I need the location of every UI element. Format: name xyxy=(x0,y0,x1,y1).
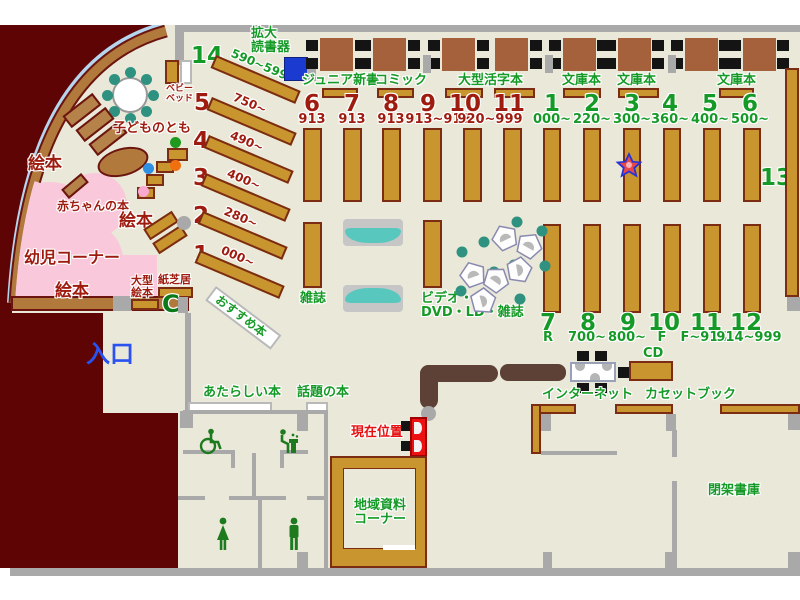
shelf-range: 220~ xyxy=(570,113,614,127)
chiiki-shelf-u: 地域資料 コーナー xyxy=(330,456,427,568)
oogata-ehon-shelf xyxy=(131,299,159,310)
chair xyxy=(477,58,489,69)
you-are-here-board xyxy=(410,417,427,457)
pillar xyxy=(668,55,676,73)
wall xyxy=(231,450,235,468)
pillar xyxy=(297,552,308,568)
wall xyxy=(178,496,205,500)
shelf-range: 914~999 xyxy=(716,331,782,345)
bookshelf xyxy=(463,128,482,202)
bookshelf xyxy=(743,224,761,313)
chair xyxy=(530,58,542,69)
study-carrels xyxy=(450,213,562,317)
section-label: ジュニア新書 xyxy=(302,74,379,88)
internet-label: インターネット xyxy=(542,388,633,402)
reading-table xyxy=(743,38,776,71)
pillar xyxy=(666,414,676,431)
entrance-label: 入口 xyxy=(86,342,134,368)
wall xyxy=(252,453,256,500)
wall xyxy=(672,481,677,552)
stool xyxy=(125,67,136,78)
shelf-range: 920~999 xyxy=(448,113,532,127)
maroon-bottom-left-block xyxy=(0,413,178,568)
shelf-range: 360~ xyxy=(648,113,692,127)
zasshi-shelf xyxy=(303,222,322,288)
bookshelf xyxy=(583,224,601,313)
bookshelf xyxy=(423,128,442,202)
chair xyxy=(729,40,741,51)
chair xyxy=(604,58,616,69)
wall xyxy=(541,451,617,455)
chair xyxy=(408,58,420,69)
chair xyxy=(359,40,371,51)
pillar xyxy=(545,55,553,73)
pillar xyxy=(665,552,677,568)
chair xyxy=(549,40,561,51)
pillar xyxy=(541,414,551,431)
shelf-range: 913 xyxy=(332,113,372,127)
woman-icon xyxy=(214,517,232,551)
star-marker xyxy=(614,151,644,181)
section-label: 大型活字本 xyxy=(458,74,523,88)
shelf-range: F xyxy=(647,331,677,345)
bottom-wall xyxy=(10,568,800,576)
chair xyxy=(777,40,789,51)
cd-shelf xyxy=(629,361,673,381)
section-label: 文庫本 xyxy=(617,74,656,88)
wall-pillar xyxy=(113,296,132,311)
stool xyxy=(109,74,120,85)
room-shelf xyxy=(531,404,541,454)
chair xyxy=(729,58,741,69)
kodomonotomo-label: 子どものとも xyxy=(113,122,191,136)
stool-green xyxy=(170,137,181,148)
reading-table xyxy=(442,38,475,71)
chair xyxy=(671,40,683,51)
step-shelf xyxy=(167,148,188,161)
bookshelf xyxy=(382,128,401,202)
section-label: 文庫本 xyxy=(717,74,756,88)
wadai-label: 話題の本 xyxy=(297,386,349,400)
chair xyxy=(477,40,489,51)
room-shelf xyxy=(720,404,800,414)
reading-table xyxy=(563,38,596,71)
baby-bed-label: ベビー ベッド xyxy=(166,85,193,104)
chair xyxy=(428,40,440,51)
corridor-wall xyxy=(185,313,191,413)
chair xyxy=(306,58,318,69)
pillar xyxy=(423,55,431,73)
service-counter xyxy=(420,365,438,409)
cassette-label: カセットブック xyxy=(645,388,736,402)
ehon-left-label: 絵本 xyxy=(28,155,62,173)
stool xyxy=(102,90,113,101)
reading-table xyxy=(495,38,528,71)
phone-icon: C xyxy=(162,292,180,318)
section-label: 文庫本 xyxy=(562,74,601,88)
pillar xyxy=(543,552,552,568)
wheelchair-icon xyxy=(197,428,224,455)
room-shelf xyxy=(615,404,673,414)
man-icon xyxy=(285,517,303,551)
bookshelf xyxy=(743,128,761,202)
curved-bench xyxy=(343,219,403,246)
stool-pink xyxy=(138,186,149,197)
pillar xyxy=(178,297,188,313)
internet-table xyxy=(570,362,616,382)
wall xyxy=(672,430,677,457)
bookshelf xyxy=(663,224,681,313)
reading-table xyxy=(373,38,406,71)
chair xyxy=(595,351,607,361)
reading-table xyxy=(320,38,353,71)
chiiki-label: 地域資料 コーナー xyxy=(350,499,410,527)
chair xyxy=(618,367,629,378)
bookshelf xyxy=(303,128,322,202)
chair xyxy=(530,40,542,51)
babybed-shelf xyxy=(165,60,179,84)
youji-corner-label: 幼児コーナー xyxy=(24,249,120,266)
bookshelf xyxy=(703,224,721,313)
shelf-range: 700~ xyxy=(565,331,609,345)
section-label: コミック xyxy=(375,74,427,88)
bookshelf-13 xyxy=(785,68,799,297)
stool-orange xyxy=(170,160,181,171)
chair xyxy=(652,58,664,69)
bookshelf xyxy=(543,128,561,202)
step-shelf xyxy=(146,174,164,186)
wall xyxy=(324,410,328,568)
stool-blue xyxy=(143,163,154,174)
ehon-bottom-label: 絵本 xyxy=(55,282,89,300)
shelf-range: 800~ xyxy=(605,331,649,345)
pillar xyxy=(788,552,800,568)
service-counter xyxy=(500,364,566,381)
stool xyxy=(148,90,159,101)
round-pillar xyxy=(177,216,191,230)
cd-label: CD xyxy=(643,347,663,361)
bookshelf xyxy=(583,128,601,202)
reading-table xyxy=(685,38,718,71)
wall xyxy=(307,496,324,500)
chair xyxy=(359,58,371,69)
chair xyxy=(577,351,589,361)
library-floor-map: 子どものとも 絵本 赤ちゃんの本 幼児コーナー 絵本 絵本 ベビー ベッド 大型… xyxy=(0,0,800,600)
zasshi-label: 雑誌 xyxy=(300,292,326,306)
shelf-range: 913 xyxy=(292,113,332,127)
stool xyxy=(141,106,152,117)
kamishibai-label: 紙芝居 xyxy=(158,274,191,286)
reading-table xyxy=(618,38,651,71)
bookshelf xyxy=(503,128,522,202)
magnifier-label: 拡大 読書器 xyxy=(251,27,290,55)
top-left-wall-stub xyxy=(175,25,184,65)
baby-fountain-icon xyxy=(277,428,301,455)
atarashii-label: あたらしい本 xyxy=(203,386,281,400)
bookshelf xyxy=(663,128,681,202)
bookshelf xyxy=(703,128,721,202)
chair xyxy=(306,40,318,51)
chair xyxy=(408,40,420,51)
stool xyxy=(141,74,152,85)
genzai-label: 現在位置 xyxy=(351,426,403,440)
chair xyxy=(652,40,664,51)
curved-bench xyxy=(343,285,403,312)
pillar xyxy=(788,414,800,430)
shelf-range: 000~ xyxy=(530,113,574,127)
pillar xyxy=(787,297,800,311)
bookshelf xyxy=(343,128,362,202)
heika-label: 閉架書庫 xyxy=(708,484,760,498)
shelf-range: R xyxy=(533,331,563,345)
chair xyxy=(604,40,616,51)
bookshelf xyxy=(623,224,641,313)
oogata-ehon-label: 大型 絵本 xyxy=(131,275,153,299)
shelf-range: 500~ xyxy=(728,113,772,127)
video-shelf xyxy=(423,220,442,288)
shelf-range: 400~ xyxy=(688,113,732,127)
wall xyxy=(258,498,262,568)
